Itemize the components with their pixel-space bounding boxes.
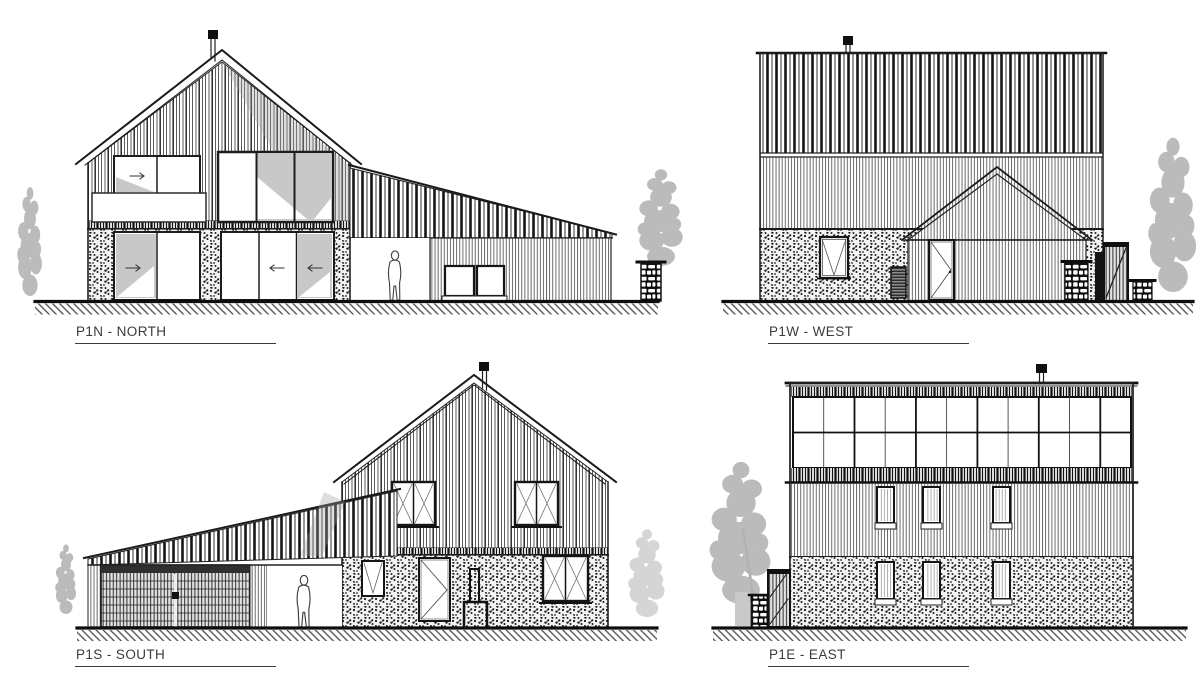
ground-line-east — [713, 628, 1186, 641]
elevation-label-east: P1E - EAST — [768, 647, 969, 667]
chimney-flue-icon — [1036, 364, 1047, 384]
roof-batten-strip — [791, 387, 1132, 397]
tree-icon — [638, 169, 683, 266]
roof-plane — [760, 53, 1103, 153]
east-elevation-drawing — [710, 364, 1187, 641]
tree-icon — [710, 462, 771, 604]
drawing-sheet: P1N - NORTH P1W - WEST P1S - SOUTH P1E -… — [0, 0, 1200, 679]
ground-line-south — [77, 628, 657, 641]
elevation-label-north: P1N - NORTH — [75, 324, 276, 344]
main-house-north — [76, 30, 361, 301]
balcony — [92, 193, 206, 222]
tree-icon — [1148, 138, 1196, 292]
ground-floor-door-left — [111, 232, 203, 301]
garage-handle — [172, 592, 179, 599]
timber-gate — [1103, 243, 1129, 301]
timber-gate — [767, 570, 791, 627]
bin-store — [735, 592, 750, 626]
garage-door — [101, 565, 250, 627]
elevation-label-south: P1S - SOUTH — [75, 647, 276, 667]
extension-roof — [88, 491, 397, 565]
garden-wall-north — [637, 262, 665, 301]
north-elevation-drawing — [17, 30, 682, 315]
ground-line-north — [35, 302, 658, 315]
stone-pier — [1133, 282, 1152, 301]
tree-icon — [55, 544, 76, 614]
stone-pier — [1065, 263, 1088, 301]
elevation-label-west: P1W - WEST — [768, 324, 969, 344]
entrance-door — [419, 558, 450, 621]
gate-post — [1095, 252, 1104, 301]
stone-pier — [751, 596, 767, 627]
timber-cladding — [790, 484, 1133, 557]
ground-floor-doors-centre — [218, 232, 337, 301]
stone-plinth-window — [818, 237, 850, 279]
ground-line-west — [723, 302, 1193, 315]
extension-roof — [350, 168, 612, 238]
main-house-east — [786, 364, 1137, 628]
chimney-flue-icon — [843, 36, 853, 53]
ground-floor-window-right — [540, 556, 591, 603]
west-elevation-drawing — [723, 36, 1196, 315]
roof-batten-strip — [791, 468, 1132, 482]
ground-floor-window-small — [362, 561, 384, 596]
extension-windows — [442, 266, 507, 301]
solar-panel-array — [793, 397, 1131, 468]
louvre-vent — [891, 267, 906, 298]
extension-door — [929, 240, 954, 300]
tree-icon — [628, 529, 664, 617]
first-floor-window-right — [512, 482, 561, 527]
first-floor-glazing-right — [218, 152, 333, 222]
south-elevation-drawing — [55, 362, 664, 641]
stone-pier — [641, 263, 661, 301]
first-floor-window-left — [114, 156, 200, 194]
single-storey-extension-north — [349, 165, 616, 301]
stone-plinth — [790, 557, 1133, 628]
tree-icon — [17, 187, 42, 296]
